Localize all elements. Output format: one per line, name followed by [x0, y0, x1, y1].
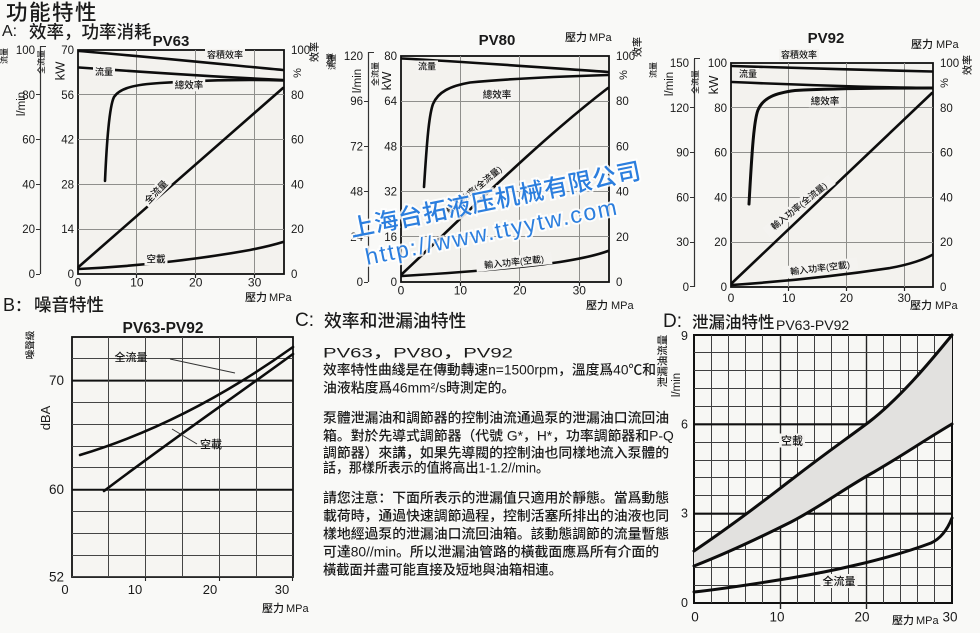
svg-text:流量: 流量 [739, 67, 757, 80]
svg-text:效率: 效率 [629, 37, 644, 57]
svg-text:PV63-PV92: PV63-PV92 [123, 320, 204, 337]
svg-text:MPa: MPa [611, 300, 635, 312]
svg-text:9: 9 [681, 329, 688, 343]
svg-text:60: 60 [676, 192, 689, 204]
svg-text:80: 80 [384, 51, 397, 63]
svg-text:60: 60 [22, 135, 35, 147]
svg-text:效率特性曲綫是在傳動轉速n=1500rpm，溫度爲40℃和: 效率特性曲綫是在傳動轉速n=1500rpm，溫度爲40℃和 [323, 359, 656, 379]
svg-text:20: 20 [714, 237, 727, 249]
svg-text:%: % [939, 78, 951, 88]
svg-text:40: 40 [22, 179, 35, 191]
svg-text:20: 20 [940, 237, 953, 249]
svg-text:14: 14 [61, 224, 74, 236]
svg-text:效率: 效率 [959, 55, 974, 75]
svg-text:全流量: 全流量 [115, 349, 148, 365]
svg-text:壓力: 壓力 [565, 29, 587, 45]
svg-text:96: 96 [350, 96, 363, 108]
svg-text:效率: 效率 [306, 42, 321, 62]
svg-text:90: 90 [676, 148, 689, 160]
svg-text:可達80//min。所以泄漏油管路的橫截面應爲所有介面的: 可達80//min。所以泄漏油管路的橫截面應爲所有介面的 [323, 541, 659, 561]
svg-text:100: 100 [16, 45, 35, 57]
svg-text:0: 0 [940, 282, 946, 294]
svg-text:壓力: 壓力 [910, 297, 932, 313]
svg-text:0: 0 [721, 282, 727, 294]
svg-text:壓力: 壓力 [245, 289, 267, 305]
svg-text:效率和泄漏油特性: 效率和泄漏油特性 [324, 307, 466, 333]
svg-text:60: 60 [940, 148, 953, 160]
svg-text:dBA: dBA [38, 405, 53, 430]
svg-text:10: 10 [128, 582, 142, 597]
svg-text:壓力: 壓力 [892, 612, 914, 628]
svg-text:20: 20 [840, 291, 854, 305]
svg-text:MPa: MPa [935, 300, 959, 312]
svg-text:0: 0 [391, 277, 397, 289]
svg-text:流量: 流量 [95, 65, 113, 78]
svg-text:60: 60 [291, 135, 304, 147]
svg-text:80: 80 [714, 103, 727, 115]
svg-text:噪聲級: 噪聲級 [23, 330, 37, 359]
svg-text:MPa: MPa [286, 603, 310, 615]
svg-text:PV63: PV63 [153, 33, 190, 50]
svg-text:全流量: 全流量 [690, 70, 701, 94]
svg-text:20: 20 [291, 224, 304, 236]
svg-text:80: 80 [940, 103, 953, 115]
svg-text:120: 120 [670, 103, 689, 115]
svg-text:40: 40 [940, 192, 953, 204]
svg-text:全流量: 全流量 [823, 573, 856, 589]
svg-text:150: 150 [670, 58, 689, 70]
svg-text:kW: kW [706, 75, 721, 95]
svg-text:40: 40 [291, 179, 304, 191]
svg-text:64: 64 [384, 96, 397, 108]
svg-text:MPa: MPa [936, 39, 960, 51]
svg-text:3: 3 [681, 507, 688, 521]
svg-text:總效率: 總效率 [483, 87, 512, 101]
svg-text:油液粘度爲46mm²/s時測定的。: 油液粘度爲46mm²/s時測定的。 [323, 377, 515, 397]
svg-text:l/min: l/min [671, 373, 683, 397]
svg-text:話，那樣所表示的值將高出1-1.2//min。: 話，那樣所表示的值將高出1-1.2//min。 [323, 457, 549, 477]
svg-text:48: 48 [350, 187, 363, 199]
svg-text:0: 0 [728, 291, 735, 305]
svg-text:空載: 空載 [146, 251, 166, 265]
svg-text:32: 32 [384, 187, 397, 199]
svg-text:28: 28 [61, 179, 74, 191]
svg-text:效率，功率消耗: 效率，功率消耗 [29, 19, 152, 44]
svg-text:0: 0 [29, 269, 35, 281]
svg-text:載荷時，通過快速調節過程，控制活塞所排出的油液也同: 載荷時，通過快速調節過程，控制活塞所排出的油液也同 [323, 505, 669, 525]
svg-text:0: 0 [398, 284, 405, 298]
svg-text:噪音特性: 噪音特性 [34, 292, 104, 317]
svg-text:橫截面并盡可能直接及短地與油箱相連。: 橫截面并盡可能直接及短地與油箱相連。 [323, 559, 562, 579]
svg-text:壓力: 壓力 [586, 297, 608, 313]
svg-text:泄漏油流量: 泄漏油流量 [655, 334, 670, 387]
svg-text:20: 20 [22, 224, 35, 236]
svg-text:kW: kW [379, 71, 394, 91]
svg-text:壓力: 壓力 [262, 600, 284, 616]
svg-text:%: % [292, 68, 304, 78]
svg-text:120: 120 [344, 51, 363, 63]
svg-text:流量: 流量 [418, 60, 436, 73]
svg-text:100: 100 [940, 58, 959, 70]
svg-text:容積效率: 容積效率 [781, 48, 817, 61]
svg-text:56: 56 [61, 90, 74, 102]
svg-text:流量: 流量 [327, 54, 338, 70]
svg-text:30: 30 [676, 237, 689, 249]
svg-text:60: 60 [616, 141, 629, 153]
svg-text:：: ： [15, 292, 31, 316]
svg-text:100: 100 [708, 58, 727, 70]
svg-text:80: 80 [616, 96, 629, 108]
svg-text:10: 10 [782, 291, 796, 305]
svg-text:l/min: l/min [16, 92, 28, 116]
svg-text:樣地經過泵的泄漏油口流回油箱。該動態調節的流量暫態: 樣地經過泵的泄漏油口流回油箱。該動態調節的流量暫態 [323, 523, 669, 543]
svg-text:A:: A: [2, 23, 17, 40]
svg-text:壓力: 壓力 [911, 36, 933, 52]
svg-text:80: 80 [291, 90, 304, 102]
svg-text:泵體泄漏油和調節器的控制油流通過泵的泄漏油口流回油: 泵體泄漏油和調節器的控制油流通過泵的泄漏油口流回油 [323, 407, 669, 427]
svg-text:10: 10 [769, 610, 784, 625]
svg-text:0: 0 [61, 582, 68, 597]
svg-text:C:: C: [295, 310, 314, 331]
svg-text:42: 42 [61, 135, 74, 147]
svg-text:總效率: 總效率 [811, 93, 840, 107]
svg-text:0: 0 [616, 277, 622, 289]
svg-text:MPa: MPa [916, 615, 940, 627]
svg-text:MPa: MPa [589, 32, 613, 44]
svg-text:PV63-PV92: PV63-PV92 [776, 317, 849, 333]
svg-text:30: 30 [942, 610, 957, 625]
svg-text:70: 70 [61, 45, 74, 57]
svg-text:0: 0 [68, 269, 74, 281]
svg-text:30: 30 [275, 582, 289, 597]
svg-text:PV92: PV92 [808, 30, 845, 47]
svg-text:空載: 空載 [200, 436, 222, 452]
svg-text:容積效率: 容積效率 [207, 48, 243, 61]
svg-text:全流量: 全流量 [36, 50, 47, 74]
svg-text:%: % [618, 70, 630, 80]
svg-text:48: 48 [384, 141, 397, 153]
svg-text:請您注意：下面所表示的泄漏值只適用於靜態。當爲動態: 請您注意：下面所表示的泄漏值只適用於靜態。當爲動態 [323, 487, 669, 507]
svg-text:0: 0 [683, 282, 689, 294]
svg-text:72: 72 [350, 141, 363, 153]
svg-text:l/min: l/min [352, 69, 364, 93]
svg-text:60: 60 [714, 148, 727, 160]
svg-text:MPa: MPa [269, 292, 293, 304]
svg-text:泄漏油特性: 泄漏油特性 [692, 309, 775, 333]
svg-text:l/min: l/min [664, 72, 676, 96]
svg-text:20: 20 [854, 610, 869, 625]
svg-text:20: 20 [616, 232, 629, 244]
svg-text:空載: 空載 [781, 432, 803, 448]
svg-text:0: 0 [691, 610, 699, 625]
svg-text:6: 6 [681, 417, 688, 431]
svg-text:60: 60 [49, 482, 64, 497]
svg-text:D:: D: [663, 311, 682, 332]
svg-text:流量: 流量 [648, 62, 659, 78]
svg-text:0: 0 [681, 596, 688, 610]
svg-text:70: 70 [49, 373, 64, 388]
svg-text:kW: kW [53, 61, 68, 81]
svg-text:0: 0 [75, 276, 82, 290]
svg-text:40: 40 [714, 192, 727, 204]
svg-text:B: B [3, 295, 15, 315]
svg-text:流量: 流量 [0, 48, 10, 64]
svg-text:總效率: 總效率 [175, 77, 204, 91]
svg-text:0: 0 [291, 269, 297, 281]
svg-text:20: 20 [203, 582, 217, 597]
svg-text:PV80: PV80 [479, 32, 516, 49]
svg-text:0: 0 [357, 277, 363, 289]
